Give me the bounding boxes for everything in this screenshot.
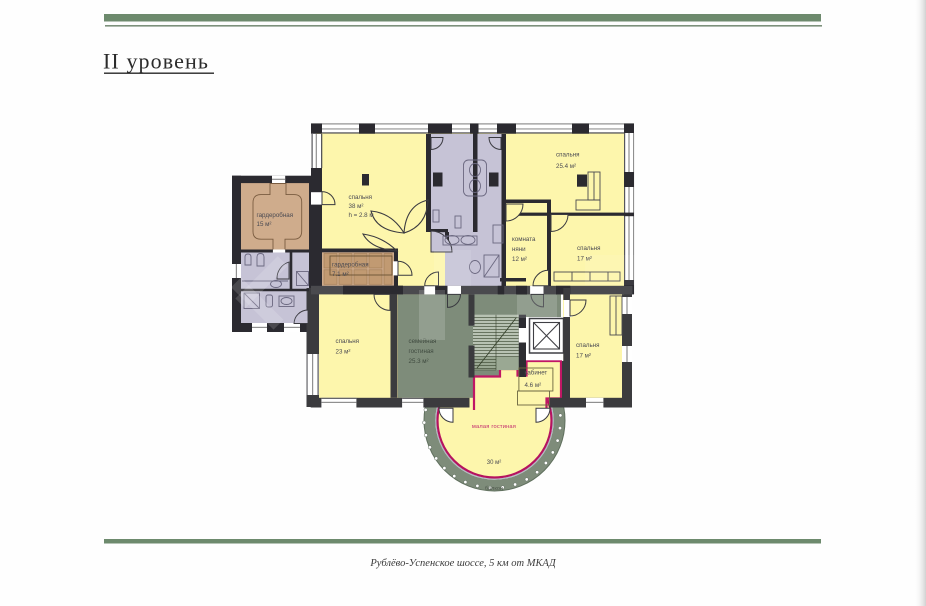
svg-text:7.1 м²: 7.1 м² [332,271,349,278]
svg-text:гостиная: гостиная [409,348,434,355]
svg-text:25.3 м²: 25.3 м² [409,358,429,365]
svg-text:комната: комната [512,236,536,243]
svg-text:спальня: спальня [576,342,600,349]
svg-text:гардеробная: гардеробная [332,262,369,269]
svg-text:балкон: балкон [485,486,503,492]
svg-text:кабинет: кабинет [525,370,548,377]
svg-text:30 м²: 30 м² [487,460,501,466]
svg-text:12 м²: 12 м² [512,256,527,263]
svg-text:спальня: спальня [556,152,580,159]
svg-text:25.4 м²: 25.4 м² [556,163,576,170]
svg-text:спальня: спальня [349,194,373,201]
svg-text:малая гостиная: малая гостиная [472,424,516,430]
svg-text:няни: няни [512,246,526,253]
svg-text:h = 2.8 м: h = 2.8 м [349,212,374,219]
svg-text:спальня: спальня [336,338,360,345]
svg-text:38 м²: 38 м² [349,203,364,210]
svg-text:15 м²: 15 м² [257,221,272,228]
svg-text:Рублёво-Успенское шоссе, 5 км: Рублёво-Успенское шоссе, 5 км от МКАД [369,558,557,569]
svg-text:4.6 м²: 4.6 м² [525,382,542,389]
svg-text:17 м²: 17 м² [576,353,591,360]
svg-text:гардеробная: гардеробная [257,212,294,219]
svg-text:II уровень: II уровень [103,49,209,74]
svg-text:спальня: спальня [577,245,601,252]
svg-text:23 м²: 23 м² [336,349,351,356]
